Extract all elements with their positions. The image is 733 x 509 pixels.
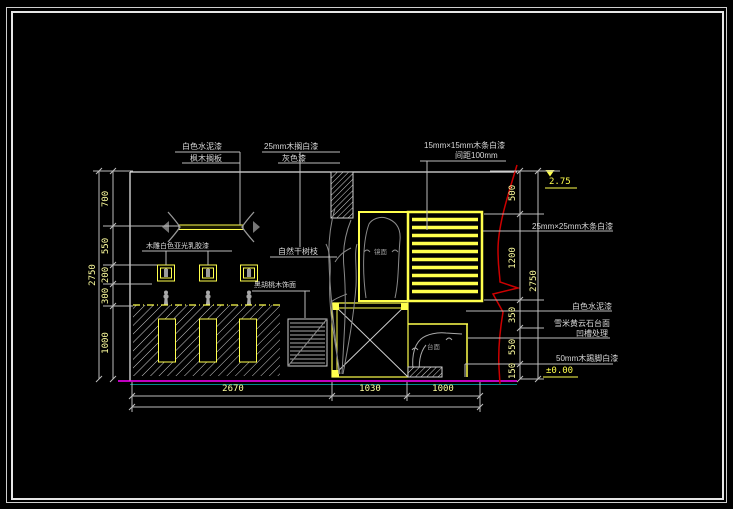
label-marble-treatment: 凹槽处理 (576, 329, 608, 338)
dim-right-overall: 2750 (529, 264, 539, 298)
frame-carvings (164, 268, 251, 277)
label-wall-paint-right: 白色水泥漆 (572, 302, 612, 311)
label-wall-paint-top: 白色水泥漆 (182, 142, 222, 151)
shelf-bracket-left-cap (162, 221, 169, 233)
dim-right-1200: 1200 (508, 241, 518, 275)
dim-right-500: 500 (508, 176, 518, 210)
cabinet-doors (159, 319, 257, 362)
level-value-bottom: ±0.00 (546, 366, 573, 376)
dim-bottom-1030: 1030 (340, 384, 400, 394)
dim-bottom-1000: 1000 (413, 384, 473, 394)
dim-left-overall: 2750 (88, 258, 98, 292)
dimension-lines-right (484, 168, 560, 382)
label-mirror-tiny: 镜面 (374, 249, 387, 256)
label-louver-cabinet: 黑胡桃木饰面 (254, 281, 296, 290)
basin-base-hatch (408, 367, 442, 377)
dim-bottom-2670: 2670 (203, 384, 263, 394)
dim-left-1000: 1000 (101, 326, 111, 360)
shelf-bracket-right-cap (253, 221, 260, 233)
wood-shelf (179, 225, 243, 230)
label-marble-counter: 雪米黄云石台面 (554, 319, 610, 328)
dim-left-300: 300 (101, 279, 111, 313)
label-skirting: 50mm木踢脚白漆 (556, 354, 618, 363)
label-counter-tiny: 台面 (427, 344, 440, 351)
x-square-diagonals (332, 303, 408, 377)
level-value-top: 2.75 (549, 177, 571, 187)
cad-elevation-drawing: 白色水泥漆 枫木搁板 25mm木搁白漆 灰色漆 15mm×15mm木条白漆 间距… (0, 0, 733, 509)
mirror-decor-outline (364, 217, 401, 298)
label-wood-carving: 木雕白色亚光乳胶漆 (146, 242, 209, 251)
shelf-bracket-left (168, 212, 180, 242)
mirror-panel (359, 212, 408, 301)
dried-branches (326, 208, 357, 374)
label-strips-15mm: 15mm×15mm木条白漆 (424, 141, 505, 150)
label-wood-shelf-25mm: 25mm木搁白漆 (264, 142, 318, 151)
label-strips-25mm: 25mm×25mm木条白漆 (532, 222, 613, 231)
shelf-bracket-right (242, 212, 254, 242)
label-dried-branches: 自然干树枝 (278, 247, 318, 256)
label-shelf-material: 枫木搁板 (190, 154, 222, 163)
dim-right-350: 350 (508, 298, 518, 332)
dim-left-700: 700 (101, 182, 111, 216)
label-strips-spacing: 间距100mm (455, 151, 498, 160)
wood-strip-screen (408, 212, 482, 301)
label-gray-paint: 灰色漆 (282, 154, 306, 163)
dim-right-150: 150 (508, 354, 518, 388)
